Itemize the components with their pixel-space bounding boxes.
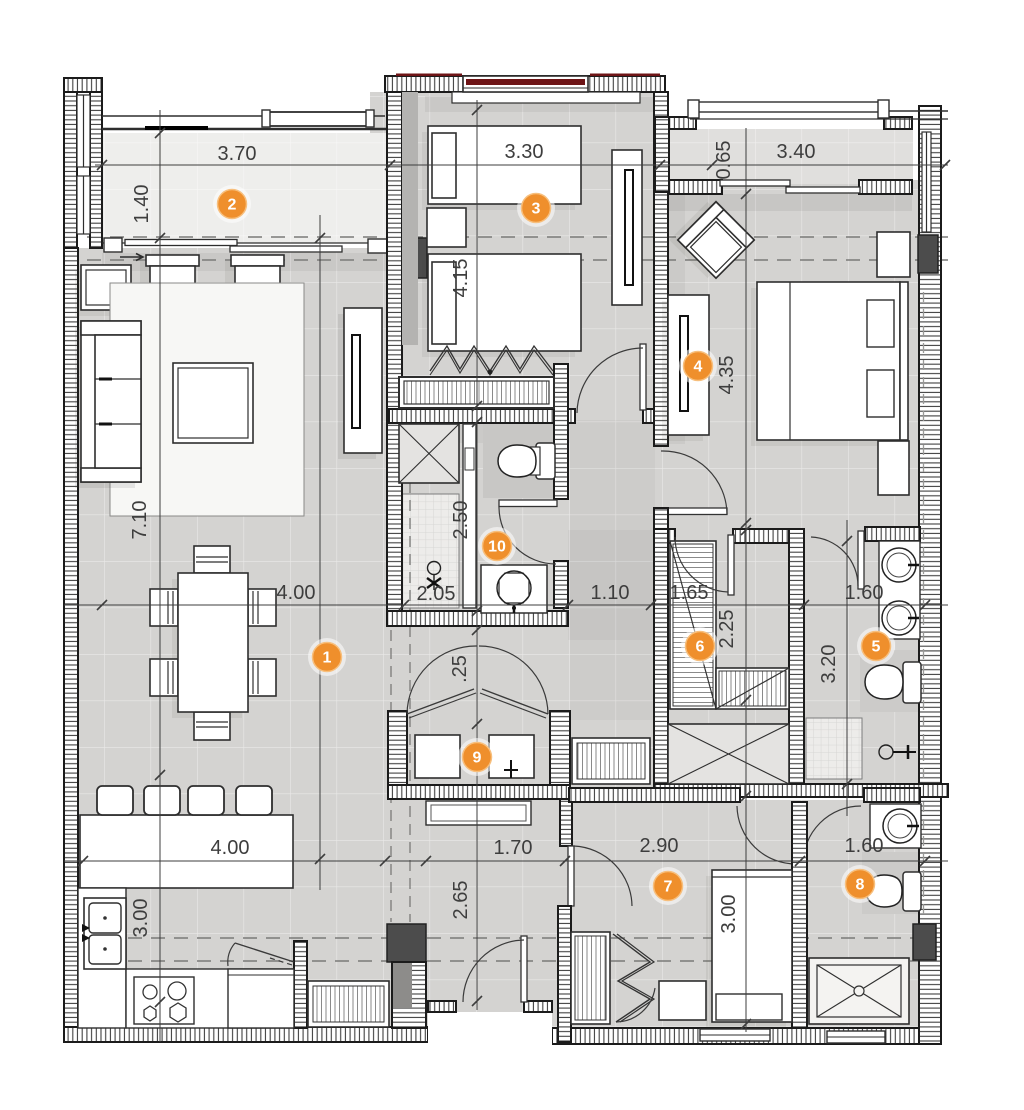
svg-text:9: 9 [473, 750, 482, 767]
svg-text:4.35: 4.35 [716, 356, 738, 395]
svg-text:2: 2 [228, 197, 237, 214]
svg-text:2.50: 2.50 [450, 501, 472, 540]
svg-text:1.60: 1.60 [845, 835, 884, 857]
svg-text:3.40: 3.40 [777, 141, 816, 163]
svg-text:2.25: 2.25 [716, 610, 738, 649]
svg-text:4.15: 4.15 [450, 259, 472, 298]
svg-text:4: 4 [694, 359, 703, 376]
svg-text:7.10: 7.10 [129, 501, 151, 540]
svg-text:7: 7 [664, 879, 673, 896]
svg-text:3.30: 3.30 [505, 141, 544, 163]
svg-text:5: 5 [872, 639, 881, 656]
svg-text:0.65: 0.65 [713, 141, 735, 180]
svg-text:1.70: 1.70 [494, 837, 533, 859]
svg-text:3.20: 3.20 [818, 645, 840, 684]
svg-text:3: 3 [532, 201, 541, 218]
svg-text:8: 8 [856, 877, 865, 894]
svg-text:3.70: 3.70 [218, 143, 257, 165]
svg-text:1: 1 [323, 650, 332, 667]
svg-text:2.90: 2.90 [640, 835, 679, 857]
svg-text:1.40: 1.40 [131, 185, 153, 224]
svg-text:3.00: 3.00 [718, 895, 740, 934]
svg-text:3.00: 3.00 [130, 899, 152, 938]
svg-text:6: 6 [696, 639, 705, 656]
svg-text:1.60: 1.60 [845, 582, 884, 604]
svg-text:1.65: 1.65 [670, 582, 709, 604]
svg-text:10: 10 [488, 539, 506, 556]
svg-text:1.10: 1.10 [591, 582, 630, 604]
svg-text:4.00: 4.00 [211, 837, 250, 859]
svg-text:2.05: 2.05 [417, 583, 456, 605]
svg-text:4.00: 4.00 [277, 582, 316, 604]
svg-text:2.65: 2.65 [450, 881, 472, 920]
svg-text:.25: .25 [449, 655, 471, 683]
